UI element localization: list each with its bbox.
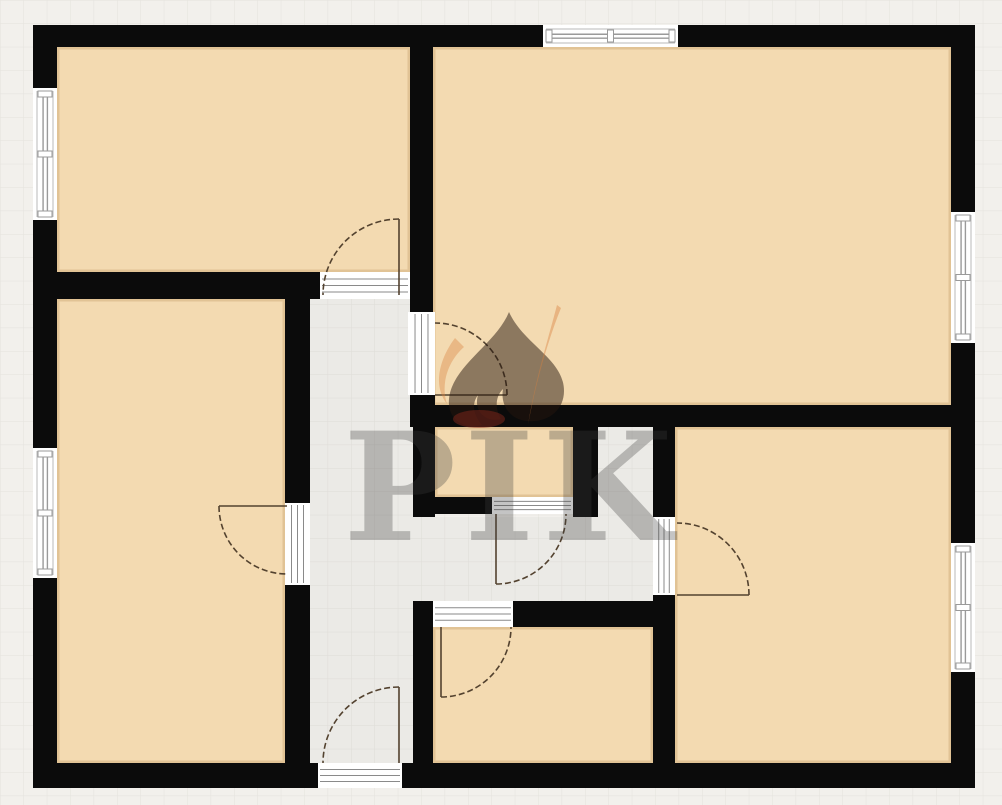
inner-wall (410, 299, 433, 312)
window-mullion (956, 275, 970, 281)
window-mullion (956, 546, 970, 552)
window (543, 25, 678, 47)
door-opening (320, 272, 410, 299)
window-mullion (669, 30, 675, 42)
outer-wall (33, 25, 975, 47)
watermark-text: PIK (343, 400, 680, 576)
window-mullion (38, 151, 52, 157)
inner-wall (653, 595, 675, 763)
door-opening (285, 503, 310, 585)
window-mullion (38, 91, 52, 97)
inner-wall (410, 47, 433, 299)
window-mullion (38, 211, 52, 217)
inner-wall (285, 299, 310, 503)
window-mullion (956, 605, 970, 611)
window-mullion (38, 510, 52, 516)
window-mullion (956, 334, 970, 340)
window (33, 88, 57, 220)
window-mullion (38, 451, 52, 457)
window (33, 448, 57, 578)
outer-wall (951, 25, 975, 788)
door-opening (318, 763, 402, 788)
window-mullion (546, 30, 552, 42)
floorplan-canvas: PIK (0, 0, 1002, 805)
window (951, 543, 975, 672)
inner-wall (513, 601, 653, 627)
inner-wall (285, 585, 310, 763)
window-mullion (956, 215, 970, 221)
door-opening (433, 601, 513, 627)
floorplan-svg: PIK (0, 0, 1002, 805)
window-mullion (38, 569, 52, 575)
outer-wall (33, 763, 975, 788)
room-left (57, 299, 285, 763)
window (951, 212, 975, 343)
door-opening (408, 312, 435, 395)
room-bottom-middle (433, 627, 653, 763)
inner-wall (413, 601, 433, 763)
window-mullion (956, 663, 970, 669)
window-mullion (608, 30, 614, 42)
inner-wall (33, 272, 320, 299)
room-top-left (57, 47, 410, 272)
